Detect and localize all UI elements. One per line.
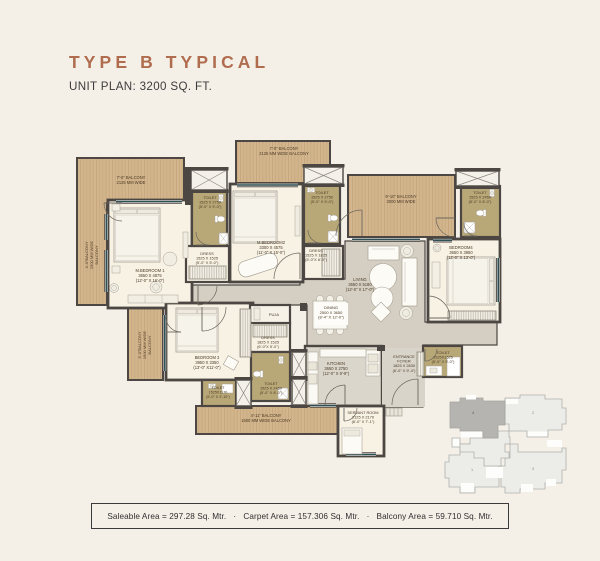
svg-text:(6'-0" X 7'-1"): (6'-0" X 7'-1"): [352, 419, 376, 424]
svg-text:1: 1: [471, 468, 473, 472]
svg-text:2: 2: [532, 411, 534, 415]
svg-text:(5'-0" X 5'-0"): (5'-0" X 5'-0"): [196, 260, 220, 265]
svg-text:(12'-0" X 16'-0"): (12'-0" X 16'-0"): [136, 278, 165, 283]
svg-text:(5'-0" X 8'-0"): (5'-0" X 8'-0"): [469, 199, 493, 204]
svg-text:(13'-0" X11'-0"): (13'-0" X11'-0"): [193, 365, 221, 370]
svg-text:4: 4: [472, 411, 474, 415]
svg-text:(5'-0" X 9'-0"): (5'-0" X 9'-0"): [199, 204, 223, 209]
svg-text:(12'-0" X 9'-9"): (12'-0" X 9'-9"): [323, 371, 350, 376]
svg-text:(5'-0" X 8'-0"): (5'-0" X 8'-0"): [260, 390, 284, 395]
svg-text:(8'-4" X 12'-0"): (8'-4" X 12'-0"): [318, 315, 344, 320]
svg-text:(12'-0" X 13'-0"): (12'-0" X 13'-0"): [447, 255, 476, 260]
svg-text:3000 MM WIDE: 3000 MM WIDE: [387, 199, 416, 204]
svg-text:(12'-0" X 17'-0"): (12'-0" X 17'-0"): [346, 287, 375, 292]
svg-text:(5'-0" X 3'-10"): (5'-0" X 3'-10"): [206, 395, 230, 399]
svg-text:1525X1170: 1525X1170: [209, 390, 228, 394]
svg-text:BALCONY: BALCONY: [94, 245, 99, 264]
svg-text:(5'-0"X 6'-0"): (5'-0"X 6'-0"): [305, 257, 327, 262]
svg-text:2125 MM WIDE: 2125 MM WIDE: [117, 180, 146, 185]
svg-text:(6'-0" X 9'-4"): (6'-0" X 9'-4"): [393, 368, 417, 373]
svg-text:(5'-0" X 5'-0"): (5'-0" X 5'-0"): [432, 359, 456, 364]
svg-text:(11'-0" X 15'-0"): (11'-0" X 15'-0"): [257, 250, 286, 255]
svg-text:2125 MM WIDE BALCONY: 2125 MM WIDE BALCONY: [259, 151, 309, 156]
svg-text:(5'-0" X 9'-0"): (5'-0" X 9'-0"): [311, 199, 335, 204]
svg-text:BALCONY: BALCONY: [147, 335, 152, 354]
svg-text:1500 MM WIDE BALCONY: 1500 MM WIDE BALCONY: [241, 418, 291, 423]
svg-text:3: 3: [532, 467, 534, 471]
svg-text:TOILET: TOILET: [212, 386, 226, 390]
svg-text:PUJA: PUJA: [269, 312, 280, 317]
svg-text:(6'-0"X 5'-0"): (6'-0"X 5'-0"): [257, 344, 279, 349]
